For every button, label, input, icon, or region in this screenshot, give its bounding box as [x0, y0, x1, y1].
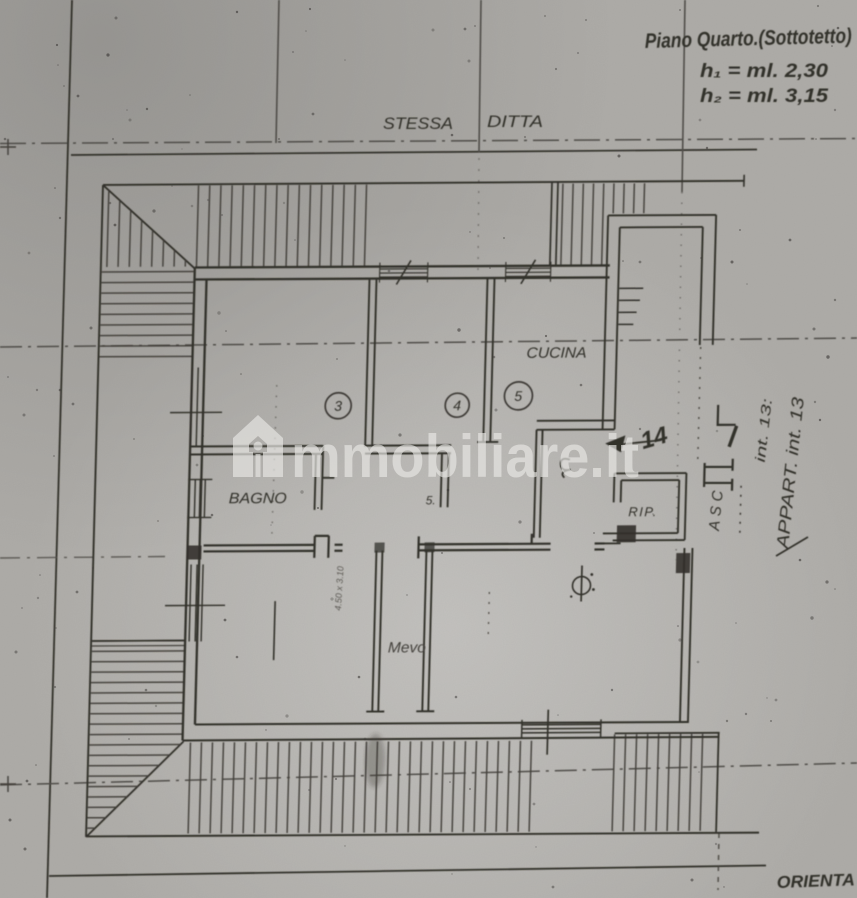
svg-text:5: 5 — [514, 388, 522, 404]
svg-text:5.: 5. — [426, 493, 436, 507]
svg-text:RIP.: RIP. — [628, 504, 656, 519]
svg-text:h₂ = ml. 3,15: h₂ = ml. 3,15 — [700, 86, 828, 107]
svg-text:mmobiliare.it: mmobiliare.it — [291, 423, 639, 490]
svg-text:CUCINA: CUCINA — [526, 345, 586, 362]
svg-text:h₁ = ml. 2,30: h₁ = ml. 2,30 — [700, 61, 828, 82]
svg-text:Mevo: Mevo — [388, 639, 426, 656]
svg-text:STESSA: STESSA — [383, 114, 453, 133]
svg-text:ORIENTA: ORIENTA — [776, 870, 855, 892]
svg-text:BAGNO: BAGNO — [229, 490, 288, 507]
svg-text:DITTA: DITTA — [487, 112, 543, 131]
svg-text:4: 4 — [453, 397, 461, 413]
svg-text:3: 3 — [334, 398, 342, 414]
